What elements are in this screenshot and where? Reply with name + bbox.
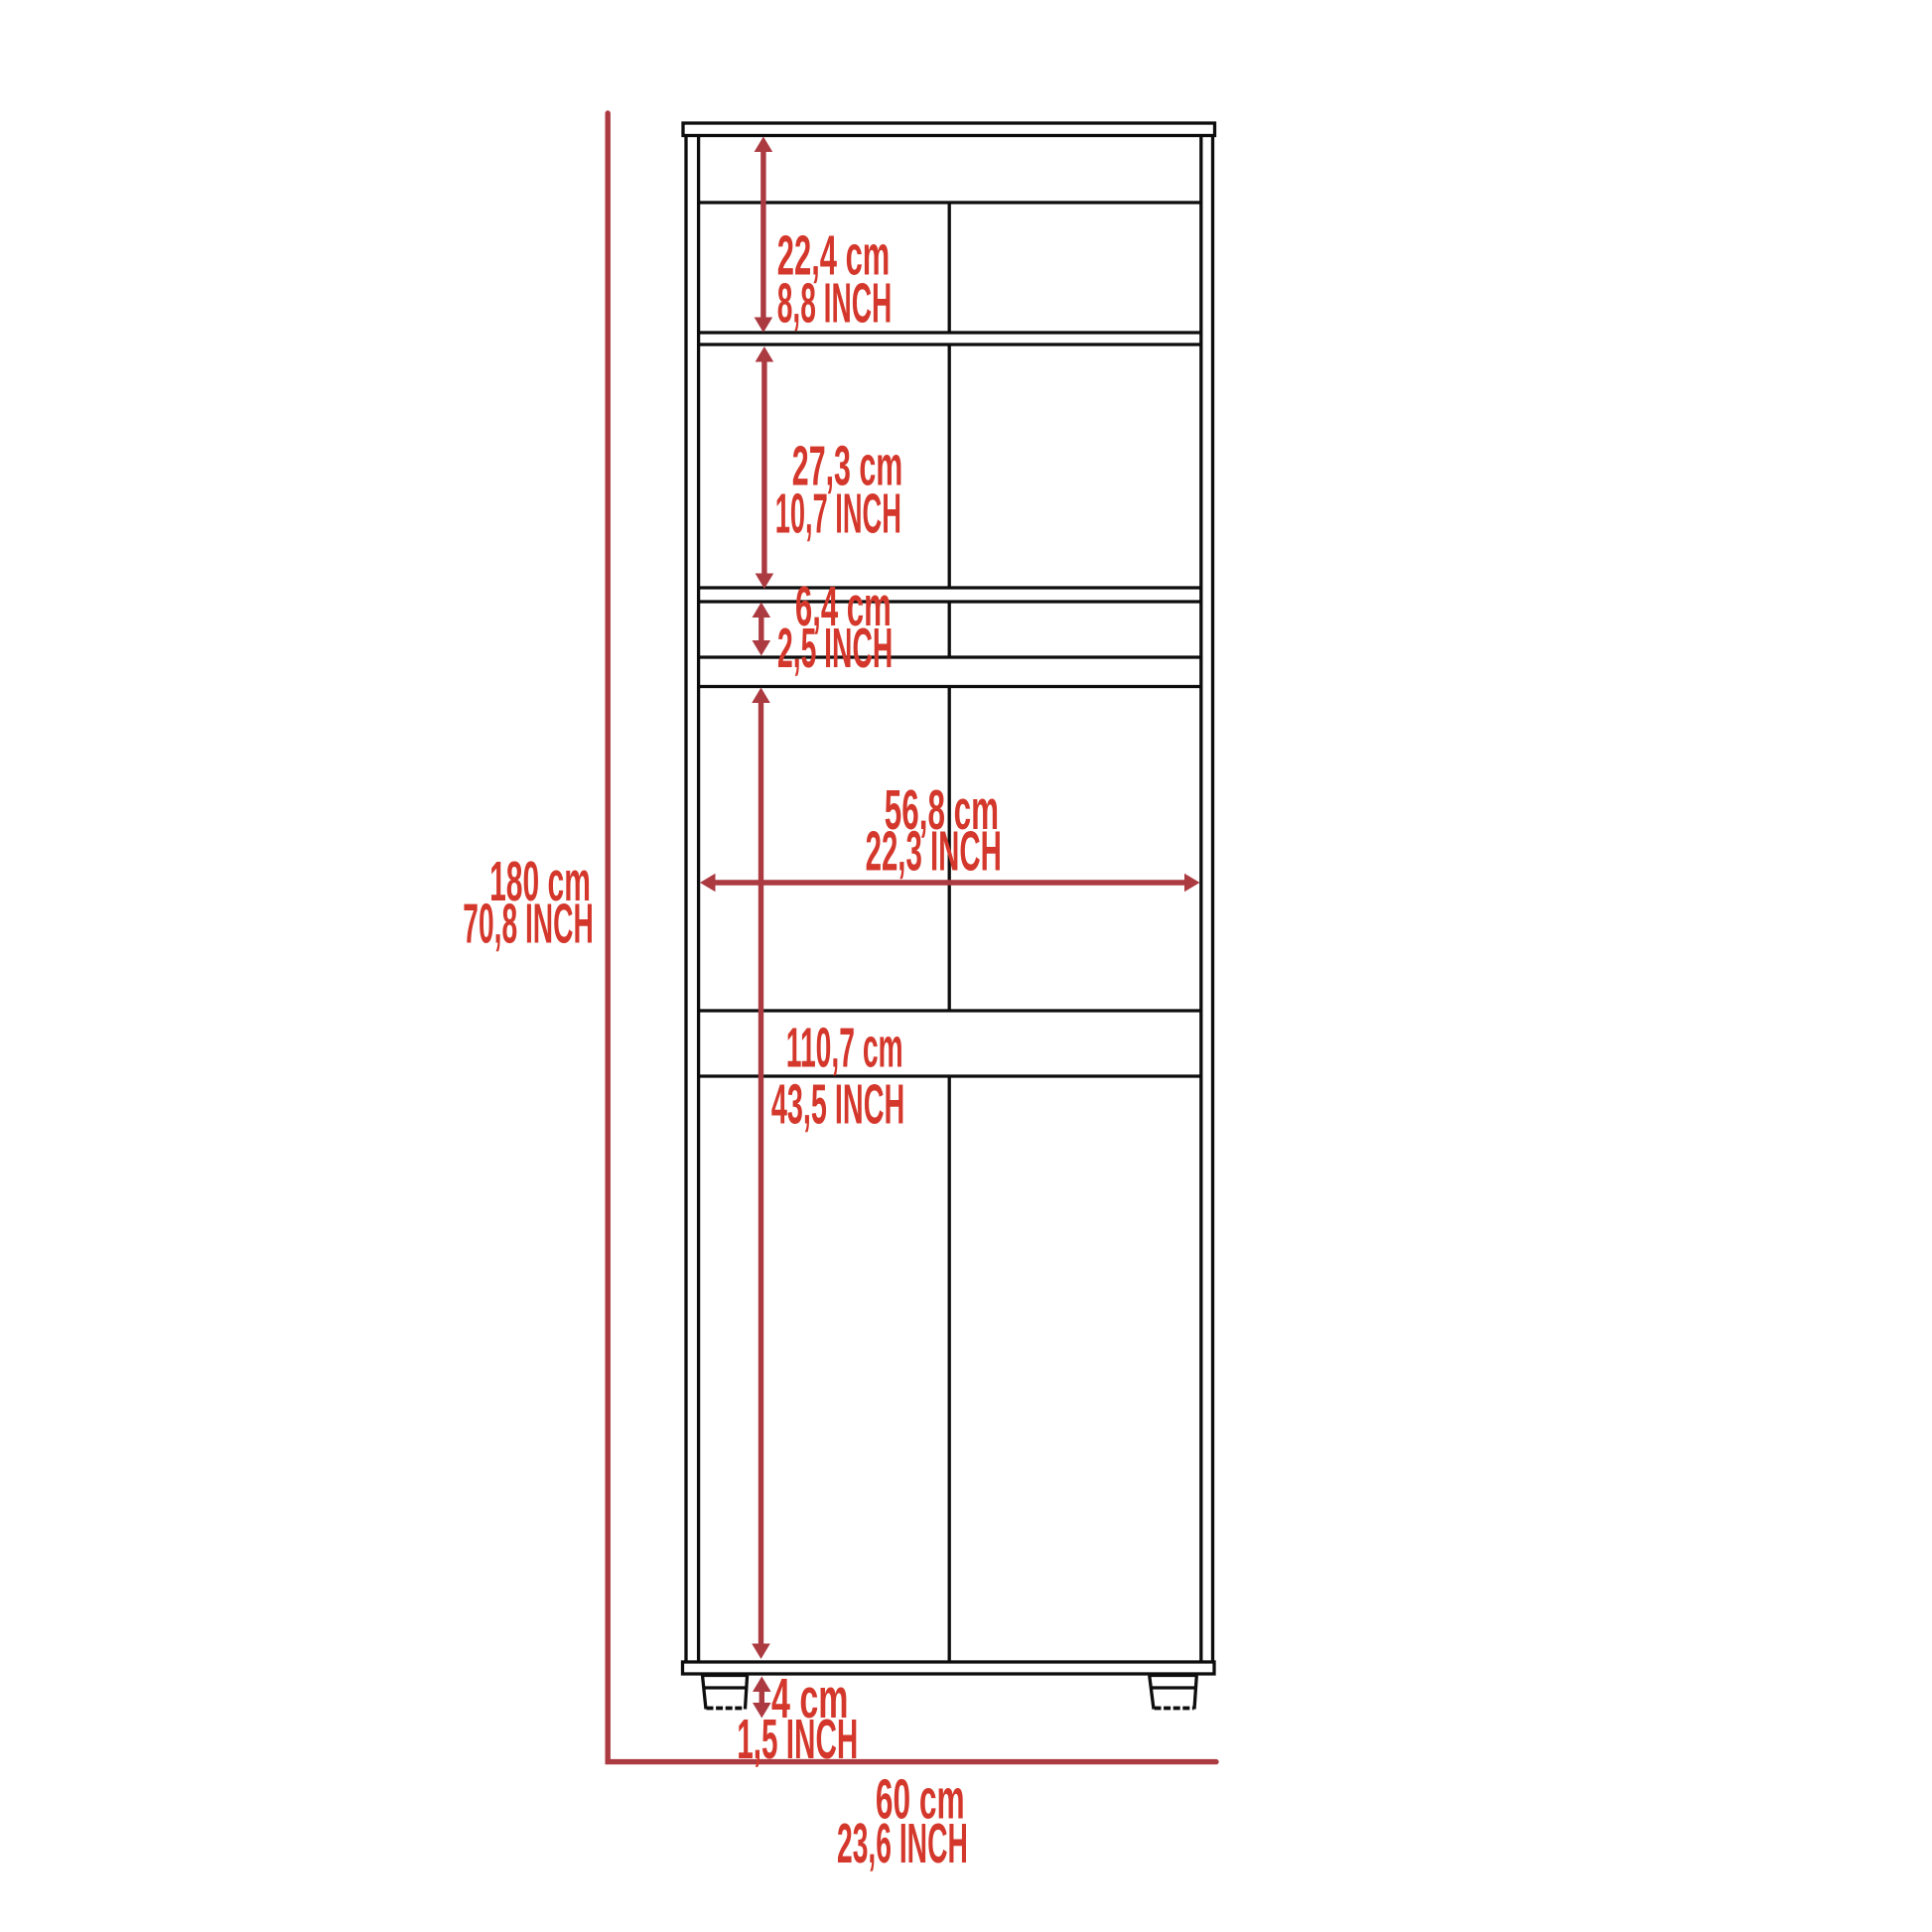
svg-text:22,3 INCH: 22,3 INCH <box>866 820 1002 884</box>
svg-text:70,8 INCH: 70,8 INCH <box>463 892 594 955</box>
svg-text:10,7 INCH: 10,7 INCH <box>775 482 901 545</box>
svg-text:1,5 INCH: 1,5 INCH <box>737 1708 858 1771</box>
svg-text:8,8 INCH: 8,8 INCH <box>777 271 893 335</box>
svg-text:2,5 INCH: 2,5 INCH <box>777 617 893 680</box>
svg-text:110,7 cm: 110,7 cm <box>786 1017 903 1080</box>
svg-text:43,5 INCH: 43,5 INCH <box>771 1073 904 1137</box>
svg-text:23,6 INCH: 23,6 INCH <box>837 1812 968 1875</box>
